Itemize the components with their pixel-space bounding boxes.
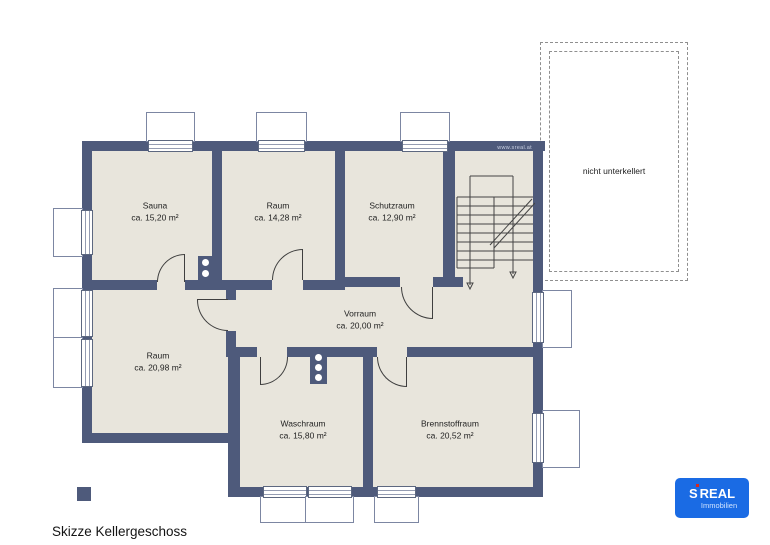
- not-basemented-label: nicht unterkellert: [583, 165, 645, 177]
- room-label-sauna: Sauna ca. 15,20 m²: [131, 200, 178, 225]
- window-lightwell: [400, 112, 450, 142]
- room-label-raum14: Raum ca. 14,28 m²: [254, 200, 301, 225]
- room-area: ca. 20,00 m²: [336, 320, 383, 332]
- sparkasse-s-icon: S: [689, 486, 698, 501]
- window-glazing: [377, 486, 416, 498]
- wall-segment-vorraum-south-3: [407, 347, 533, 357]
- sreal-logo-wordmark: S REAL: [689, 486, 735, 501]
- legend-square: [77, 487, 91, 501]
- door-leaf-waschraum: [260, 357, 261, 385]
- door-leaf-schutzraum: [432, 287, 433, 319]
- wall-segment-waschraum-west: [228, 347, 240, 497]
- sreal-logo: S REAL Immobilien: [675, 478, 749, 518]
- window-lightwell: [53, 288, 83, 338]
- door-leaf-sauna: [184, 254, 185, 282]
- window-lightwell: [146, 112, 195, 142]
- wall-segment-vorraum-south-2: [287, 347, 377, 357]
- chimney-block: [198, 256, 214, 282]
- window-glazing: [81, 210, 93, 255]
- sparkasse-red-dot-icon: [696, 484, 699, 487]
- window-glazing: [532, 413, 544, 463]
- wall-segment-sauna-bottom-left: [92, 280, 157, 290]
- room-label-brennstoffraum: Brennstoffraum ca. 20,52 m²: [421, 418, 479, 443]
- chimney-flue-dot: [202, 259, 209, 266]
- window-lightwell: [542, 290, 572, 348]
- room-label-vorraum: Vorraum ca. 20,00 m²: [336, 308, 383, 333]
- room-area: ca. 14,28 m²: [254, 212, 301, 224]
- window-glazing: [258, 140, 305, 152]
- room-name: Waschraum: [279, 418, 326, 430]
- window-lightwell: [53, 208, 83, 257]
- chimney-flue-dot: [202, 270, 209, 277]
- chimney-block: [310, 351, 327, 384]
- window-glazing: [148, 140, 193, 152]
- wall-segment-raum-bottom: [82, 433, 238, 443]
- chimney-flue-dot: [315, 374, 322, 381]
- wall-segment-raum-east-lower: [226, 331, 236, 347]
- room-area: ca. 12,90 m²: [368, 212, 415, 224]
- room-name: Brennstoffraum: [421, 418, 479, 430]
- watermark-url: www.sreal.at: [494, 145, 532, 151]
- staircase: [455, 155, 535, 295]
- chimney-flue-dot: [315, 354, 322, 361]
- wall-segment-raum14-schutz-divider: [335, 151, 345, 290]
- window-glazing: [263, 486, 307, 498]
- logo-subtitle: Immobilien: [701, 501, 737, 510]
- room-name: Schutzraum: [368, 200, 415, 212]
- window-glazing: [402, 140, 448, 152]
- door-leaf-brennstoffraum: [406, 357, 407, 387]
- chimney-flue-dot: [315, 364, 322, 371]
- window-glazing: [532, 292, 544, 343]
- room-name: Sauna: [131, 200, 178, 212]
- room-area: ca. 15,80 m²: [279, 430, 326, 442]
- room-label-waschraum: Waschraum ca. 15,80 m²: [279, 418, 326, 443]
- room-name: Raum: [254, 200, 301, 212]
- room-area: ca. 20,52 m²: [421, 430, 479, 442]
- logo-letter-s: S: [689, 486, 698, 501]
- page-title: Skizze Kellergeschoss: [52, 524, 187, 539]
- window-lightwell: [542, 410, 580, 468]
- door-leaf-raum14: [302, 249, 303, 280]
- not-basemented-outline-inner: [549, 51, 679, 272]
- door-leaf-raum20: [197, 299, 228, 300]
- window-lightwell: [305, 496, 354, 523]
- room-name: Vorraum: [336, 308, 383, 320]
- wall-segment-stair-left: [443, 151, 455, 277]
- window-glazing: [81, 290, 93, 337]
- window-lightwell: [374, 496, 419, 523]
- room-name: Raum: [134, 350, 181, 362]
- floorplan-canvas: nicht unterkellert: [0, 0, 770, 545]
- window-glazing: [308, 486, 352, 498]
- window-glazing: [81, 339, 93, 387]
- wall-segment-schutz-bottom-left: [345, 277, 400, 287]
- window-lightwell: [53, 337, 83, 388]
- room-label-schutzraum: Schutzraum ca. 12,90 m²: [368, 200, 415, 225]
- room-label-raum20: Raum ca. 20,98 m²: [134, 350, 181, 375]
- logo-brand-name: REAL: [700, 486, 735, 501]
- window-lightwell: [256, 112, 307, 142]
- room-area: ca. 15,20 m²: [131, 212, 178, 224]
- wall-segment-wasch-brenn-divider: [363, 357, 373, 487]
- window-lightwell: [260, 496, 308, 523]
- room-area: ca. 20,98 m²: [134, 362, 181, 374]
- wall-segment-raum14-bottom-right: [303, 280, 335, 290]
